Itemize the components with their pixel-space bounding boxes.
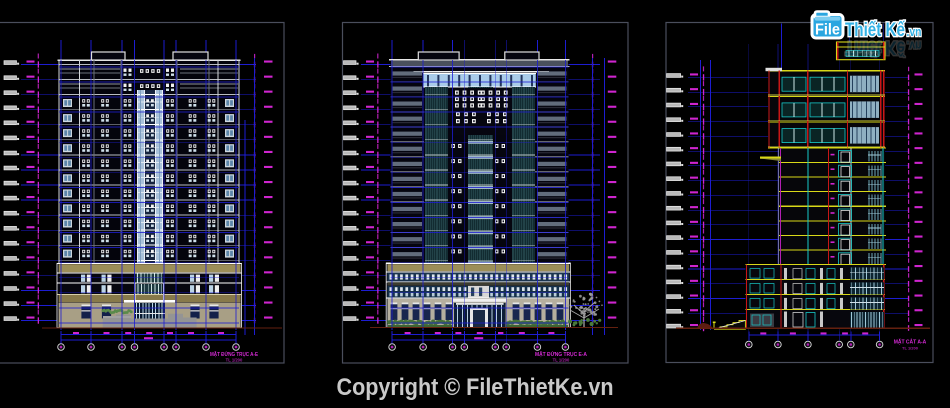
svg-text:.vn: .vn [907, 24, 922, 39]
svg-text:TL 1/200: TL 1/200 [902, 345, 919, 350]
svg-text:TL 1/200: TL 1/200 [226, 358, 243, 363]
svg-text:MẶT CẮT A-A: MẶT CẮT A-A [894, 338, 927, 346]
svg-text:Copyright © FileThietKe.vn: Copyright © FileThietKe.vn [337, 374, 614, 401]
svg-text:TL 1/200: TL 1/200 [553, 358, 570, 363]
svg-text:File: File [815, 21, 840, 38]
